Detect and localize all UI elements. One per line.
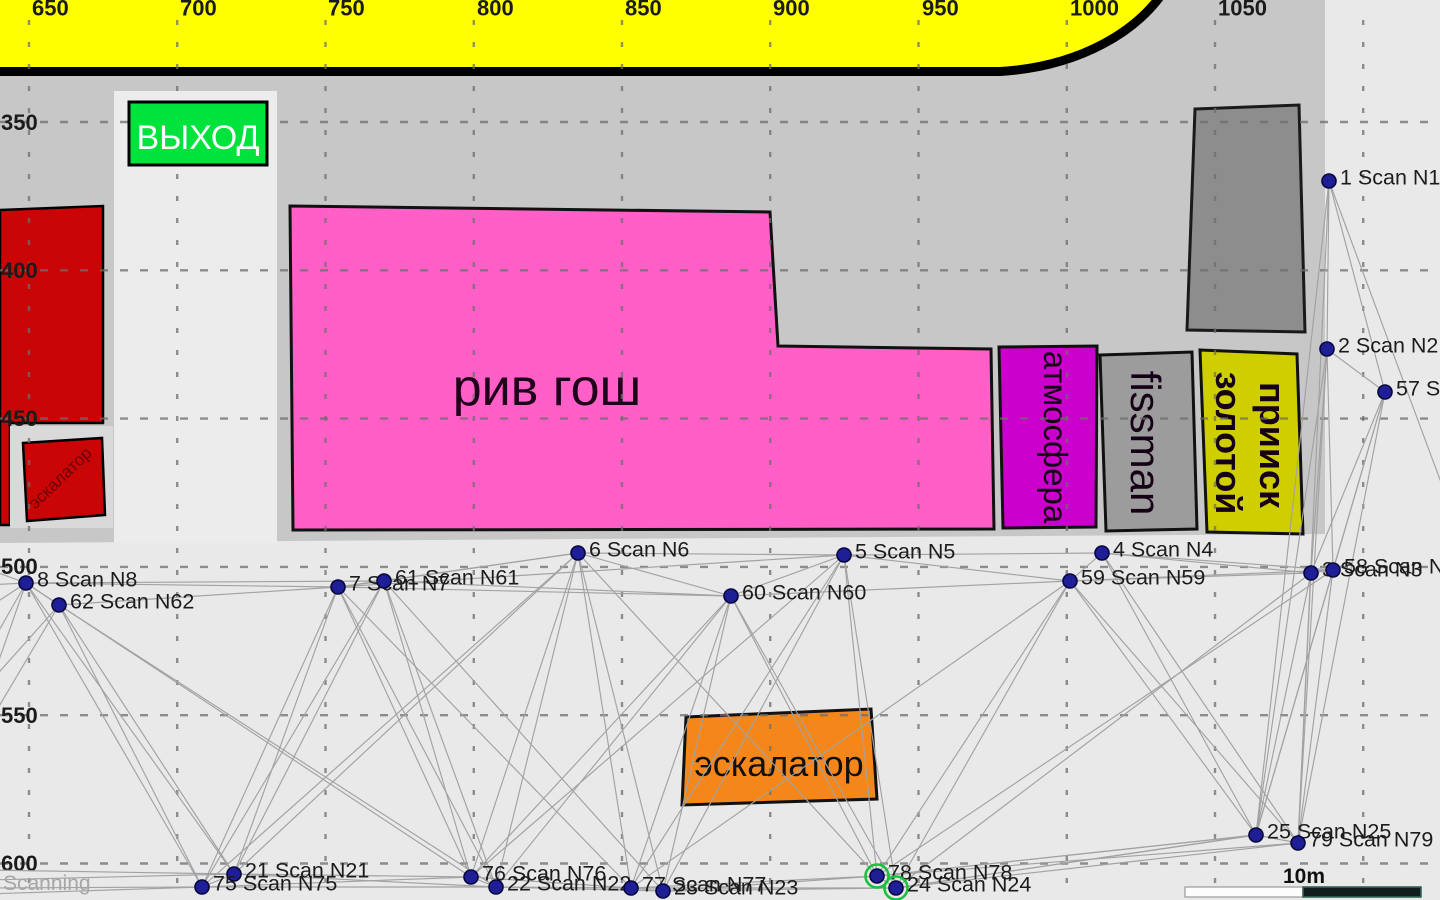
svg-text:79 Scan N79: 79 Scan N79	[1309, 828, 1433, 852]
svg-text:10m: 10m	[1283, 865, 1325, 888]
svg-text:8 Scan N8: 8 Scan N8	[37, 568, 137, 592]
svg-text:350: 350	[1, 110, 38, 135]
svg-text:750: 750	[328, 0, 365, 21]
svg-text:61 Scan N61: 61 Scan N61	[395, 566, 519, 590]
svg-text:550: 550	[1, 703, 38, 728]
svg-text:золотой: золотой	[1208, 372, 1249, 515]
svg-text:1000: 1000	[1070, 0, 1119, 21]
svg-text:75 Scan N75: 75 Scan N75	[213, 872, 337, 896]
svg-text:2 Scan N2: 2 Scan N2	[1338, 334, 1438, 358]
svg-text:прииск: прииск	[1252, 382, 1293, 509]
svg-text:24 Scan N24: 24 Scan N24	[907, 873, 1031, 897]
svg-text:800: 800	[477, 0, 514, 21]
svg-text:450: 450	[1, 406, 38, 431]
svg-text:22 Scan N22: 22 Scan N22	[507, 872, 631, 896]
svg-text:900: 900	[773, 0, 810, 21]
svg-text:62 Scan N62: 62 Scan N62	[70, 590, 194, 614]
svg-text:57 Scan N57: 57 Scan N57	[1396, 377, 1440, 401]
svg-text:60 Scan N60: 60 Scan N60	[742, 581, 866, 605]
svg-text:950: 950	[922, 0, 959, 21]
svg-text:Scanning: Scanning	[3, 872, 91, 895]
svg-text:500: 500	[1, 554, 38, 579]
svg-text:5 Scan N5: 5 Scan N5	[855, 540, 955, 564]
svg-text:атмосфера: атмосфера	[1037, 351, 1074, 524]
svg-text:рив гош: рив гош	[453, 359, 642, 417]
svg-text:400: 400	[1, 258, 38, 283]
svg-text:59 Scan N59: 59 Scan N59	[1081, 566, 1205, 590]
svg-text:650: 650	[32, 0, 69, 21]
svg-text:fissman: fissman	[1122, 371, 1169, 516]
svg-text:1 Scan N1: 1 Scan N1	[1340, 166, 1440, 190]
svg-text:58 Scan N58: 58 Scan N58	[1344, 555, 1440, 579]
svg-text:4 Scan N4: 4 Scan N4	[1113, 538, 1213, 562]
svg-text:850: 850	[625, 0, 662, 21]
svg-text:1050: 1050	[1218, 0, 1267, 21]
svg-text:700: 700	[180, 0, 217, 21]
svg-text:6 Scan N6: 6 Scan N6	[589, 538, 689, 562]
svg-text:23 Scan N23: 23 Scan N23	[674, 876, 798, 900]
svg-text:ВЫХОД: ВЫХОД	[136, 119, 259, 157]
